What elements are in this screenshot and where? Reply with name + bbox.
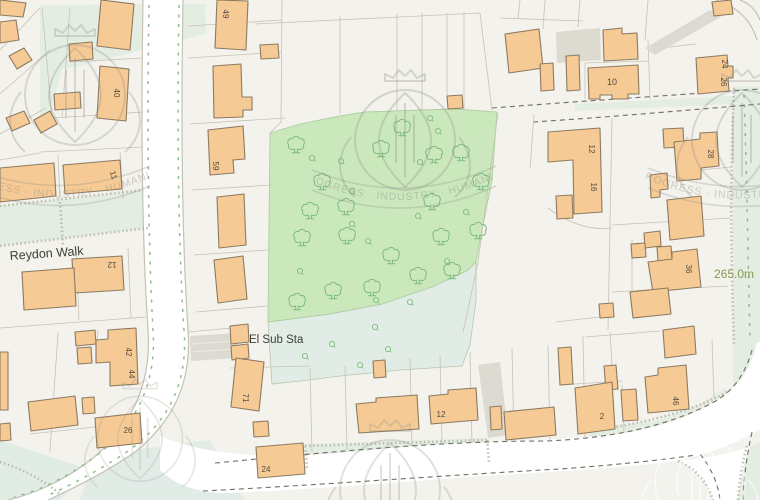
building-2: [575, 382, 615, 434]
house-number-label: 12: [587, 145, 596, 154]
house-number-label: 44: [127, 370, 136, 379]
building: [54, 92, 81, 110]
building: [556, 195, 573, 219]
building: [630, 288, 671, 318]
house-number-label: 26: [719, 78, 728, 87]
place-name-label: El Sub Sta: [249, 334, 304, 346]
building: [504, 407, 556, 440]
house-number-label: 16: [589, 183, 598, 192]
building: [603, 28, 638, 61]
house-number-label: 42: [124, 348, 133, 357]
building: [558, 347, 573, 385]
building: [631, 243, 646, 258]
house-number-label: 46: [671, 397, 680, 406]
map-svg: PROGRESS · INDUSTRY · HUMANITY PROGRESS …: [0, 0, 760, 500]
building: [621, 389, 638, 421]
building: [214, 256, 247, 303]
building: [373, 360, 386, 378]
house-number-label: 12: [437, 410, 446, 419]
substation-building: [231, 344, 249, 360]
verge-right-edge: [733, 86, 760, 386]
building: [490, 406, 502, 430]
house-number-label: 26: [124, 426, 133, 435]
building: [22, 268, 76, 310]
building: [447, 95, 463, 109]
building: [77, 347, 92, 364]
building: [712, 0, 733, 16]
building: [644, 231, 661, 248]
building: [0, 20, 19, 43]
house-number-label: 71: [241, 394, 250, 403]
house-number-label: 24: [720, 60, 729, 69]
house-number-label: 12: [107, 260, 116, 269]
building: [253, 421, 269, 437]
building-71: [231, 358, 264, 411]
house-number-label: 2: [600, 412, 605, 421]
building: [97, 0, 134, 50]
building: [599, 303, 614, 318]
building: [566, 55, 580, 91]
house-number-label: 24: [262, 465, 271, 474]
building-49: [215, 0, 248, 50]
spot-height-label: 265.0m: [714, 267, 754, 281]
building: [260, 44, 279, 59]
building: [0, 0, 26, 17]
building: [217, 194, 246, 248]
house-number-label: 59: [211, 162, 220, 171]
house-number-label: 36: [684, 265, 693, 274]
house-number-label: 40: [112, 89, 121, 98]
building: [28, 396, 78, 431]
house-number-label: 28: [706, 150, 715, 159]
substation-building: [230, 324, 249, 344]
building: [540, 63, 554, 91]
building: [663, 326, 696, 358]
map-canvas[interactable]: PROGRESS · INDUSTRY · HUMANITY PROGRESS …: [0, 0, 760, 500]
house-number-label: 10: [607, 77, 617, 87]
house-number-label: 49: [221, 10, 230, 19]
building: [82, 397, 95, 414]
building: [0, 352, 8, 410]
building: [75, 330, 96, 346]
building: [505, 29, 543, 73]
building: [0, 423, 11, 441]
